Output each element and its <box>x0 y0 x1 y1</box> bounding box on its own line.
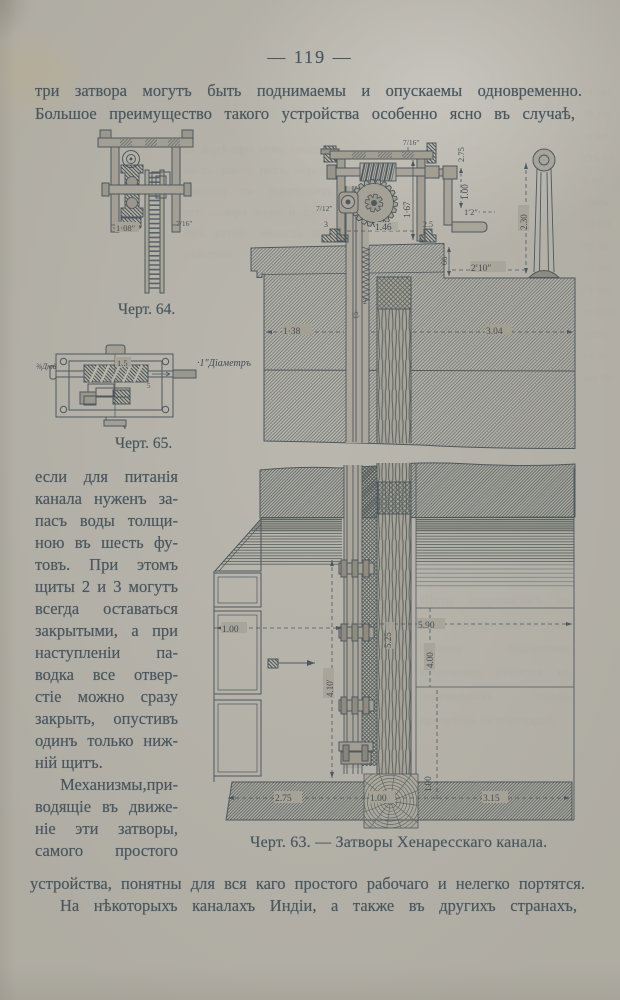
svg-text:1.46: 1.46 <box>375 223 392 233</box>
svg-text:5.90: 5.90 <box>418 621 435 631</box>
svg-text:2.75: 2.75 <box>456 147 466 162</box>
svg-text:2: 2 <box>363 297 367 306</box>
svg-text:2.5: 2.5 <box>423 220 433 229</box>
svg-text:7/16″: 7/16″ <box>403 138 419 147</box>
svg-text:1·08″: 1·08″ <box>116 223 136 233</box>
svg-text:7/12″: 7/12″ <box>316 204 332 213</box>
svg-text:(5: (5 <box>351 311 360 318</box>
svg-text:5: 5 <box>147 382 151 390</box>
svg-text:4.00: 4.00 <box>425 652 435 668</box>
svg-text:3.04: 3.04 <box>486 327 503 337</box>
svg-text:1.00: 1.00 <box>423 776 433 792</box>
svg-text:2.30: 2.30 <box>519 214 529 230</box>
svg-text:7/16″: 7/16″ <box>176 219 192 228</box>
svg-text:1.00: 1.00 <box>460 184 470 200</box>
svg-text:3: 3 <box>324 220 328 229</box>
svg-text:3.15: 3.15 <box>483 794 500 804</box>
svg-text:5.25: 5.25 <box>383 632 393 648</box>
svg-text:1.00: 1.00 <box>370 794 387 804</box>
svg-text:·66: ·66 <box>439 257 449 268</box>
svg-text:1·38: 1·38 <box>283 327 301 337</box>
svg-text:2′10″: 2′10″ <box>471 264 491 274</box>
svg-text:·1″Діаметръ: ·1″Діаметръ <box>197 358 251 369</box>
svg-text:1·67: 1·67 <box>402 201 412 218</box>
svg-text:2.75: 2.75 <box>275 794 292 804</box>
svg-text:1.5: 1.5 <box>117 358 128 368</box>
svg-text:1.00: 1.00 <box>222 625 239 635</box>
svg-text:⅜Дюй: ⅜Дюй <box>36 362 57 371</box>
svg-text:1′2″·: 1′2″· <box>464 207 481 217</box>
svg-text:4.10′: 4.10′ <box>325 679 335 697</box>
